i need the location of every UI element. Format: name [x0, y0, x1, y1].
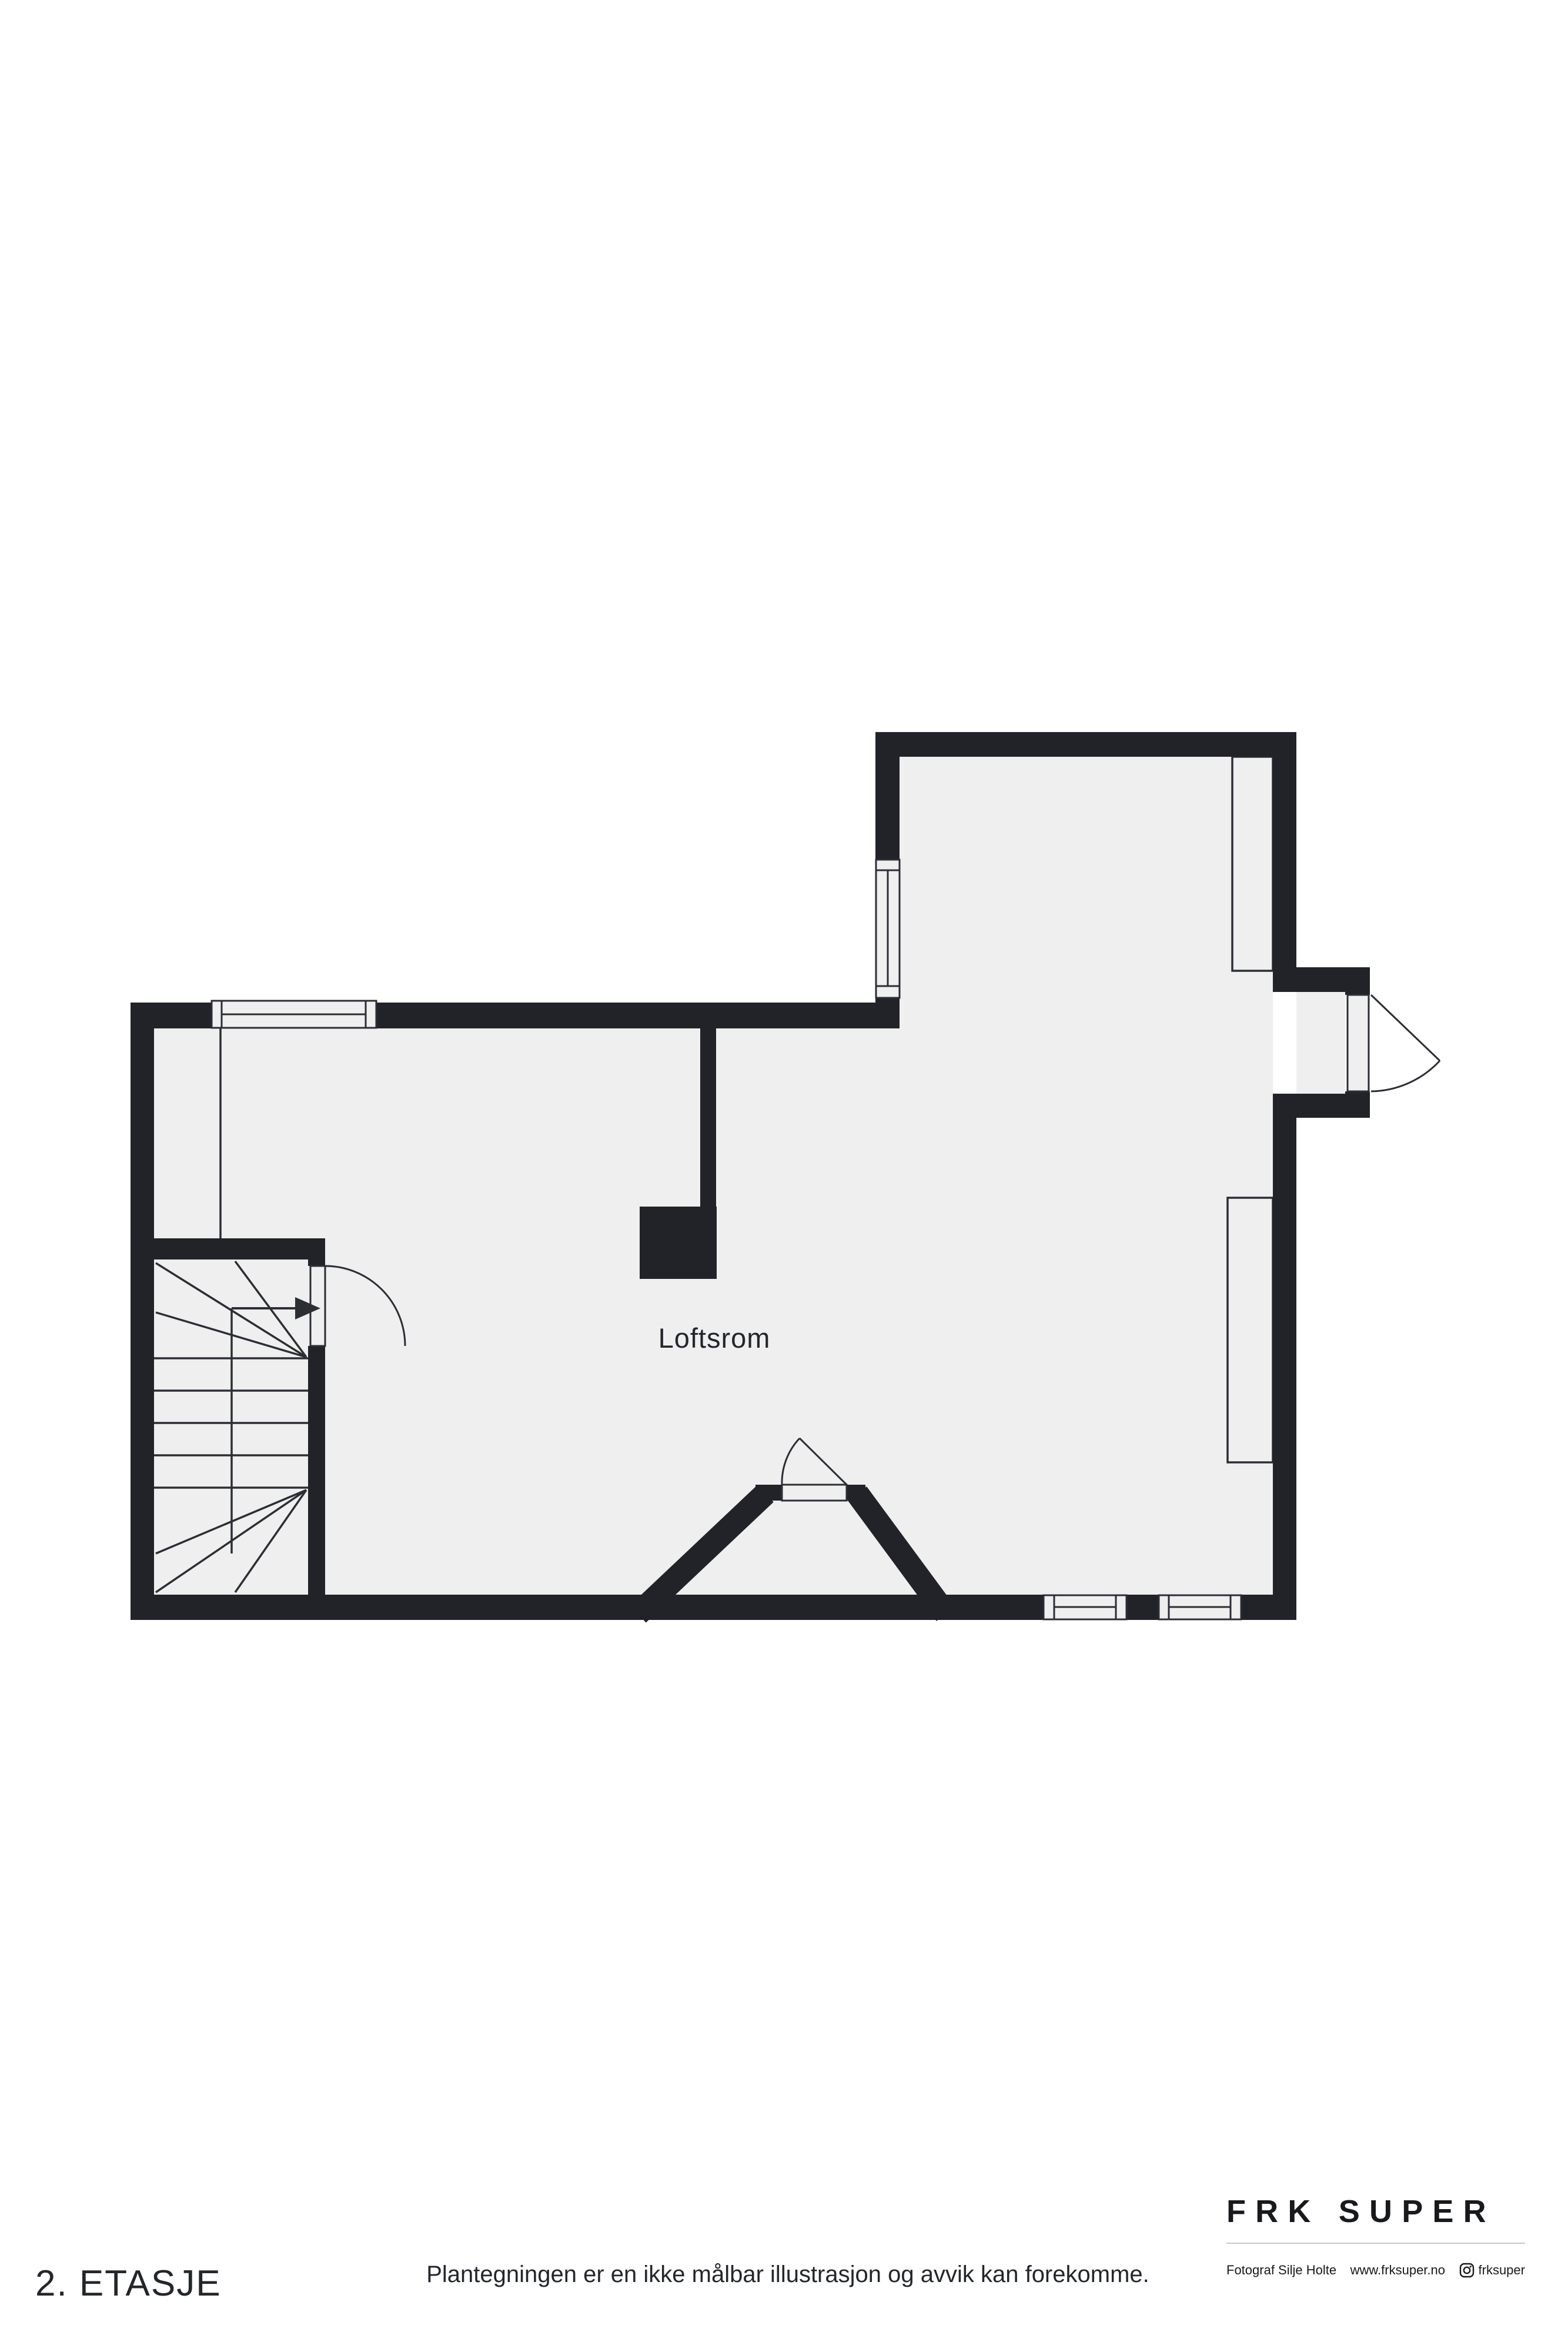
wall-topsection-top	[875, 732, 1296, 757]
wall-alcove-outer-upper	[1345, 967, 1370, 995]
website-link: www.frksuper.no	[1350, 2263, 1445, 2278]
instagram-handle: frksuper	[1479, 2263, 1525, 2278]
brand-contact-row: Fotograf Silje Holte www.frksuper.no frk…	[1226, 2263, 1525, 2278]
instagram-icon	[1459, 2263, 1475, 2278]
brand-divider	[1226, 2243, 1525, 2244]
wall-stair-top	[154, 1238, 325, 1259]
brand-block: FRK SUPER Fotograf Silje Holte www.frksu…	[1226, 2193, 1529, 2278]
wall-right-lower	[1273, 1118, 1296, 1620]
wall-alcove-outer-lower	[1345, 1091, 1370, 1118]
brand-logo: FRK SUPER	[1226, 2193, 1529, 2230]
room-label: Loftsrom	[594, 1322, 835, 1354]
window-top-left	[212, 1001, 376, 1028]
wall-stair-right-upper	[308, 1259, 325, 1266]
entrance-door	[1348, 995, 1440, 1091]
chimney-block	[640, 1207, 717, 1279]
photographer-credit: Fotograf Silje Holte	[1226, 2263, 1336, 2278]
wall-stair-right-lower	[308, 1346, 325, 1595]
window-topsection-left	[876, 860, 900, 998]
floor-area	[154, 757, 1345, 1595]
instagram-item: frksuper	[1459, 2263, 1525, 2278]
wall-left	[131, 1003, 154, 1620]
page: Loftsrom 2. ETASJE Plantegningen er en i…	[0, 0, 1568, 2352]
wall-topsection-right	[1273, 732, 1296, 967]
window-bottom-1	[1044, 1595, 1126, 1619]
window-bottom-2	[1159, 1595, 1241, 1619]
floor-plan	[0, 0, 1568, 2352]
